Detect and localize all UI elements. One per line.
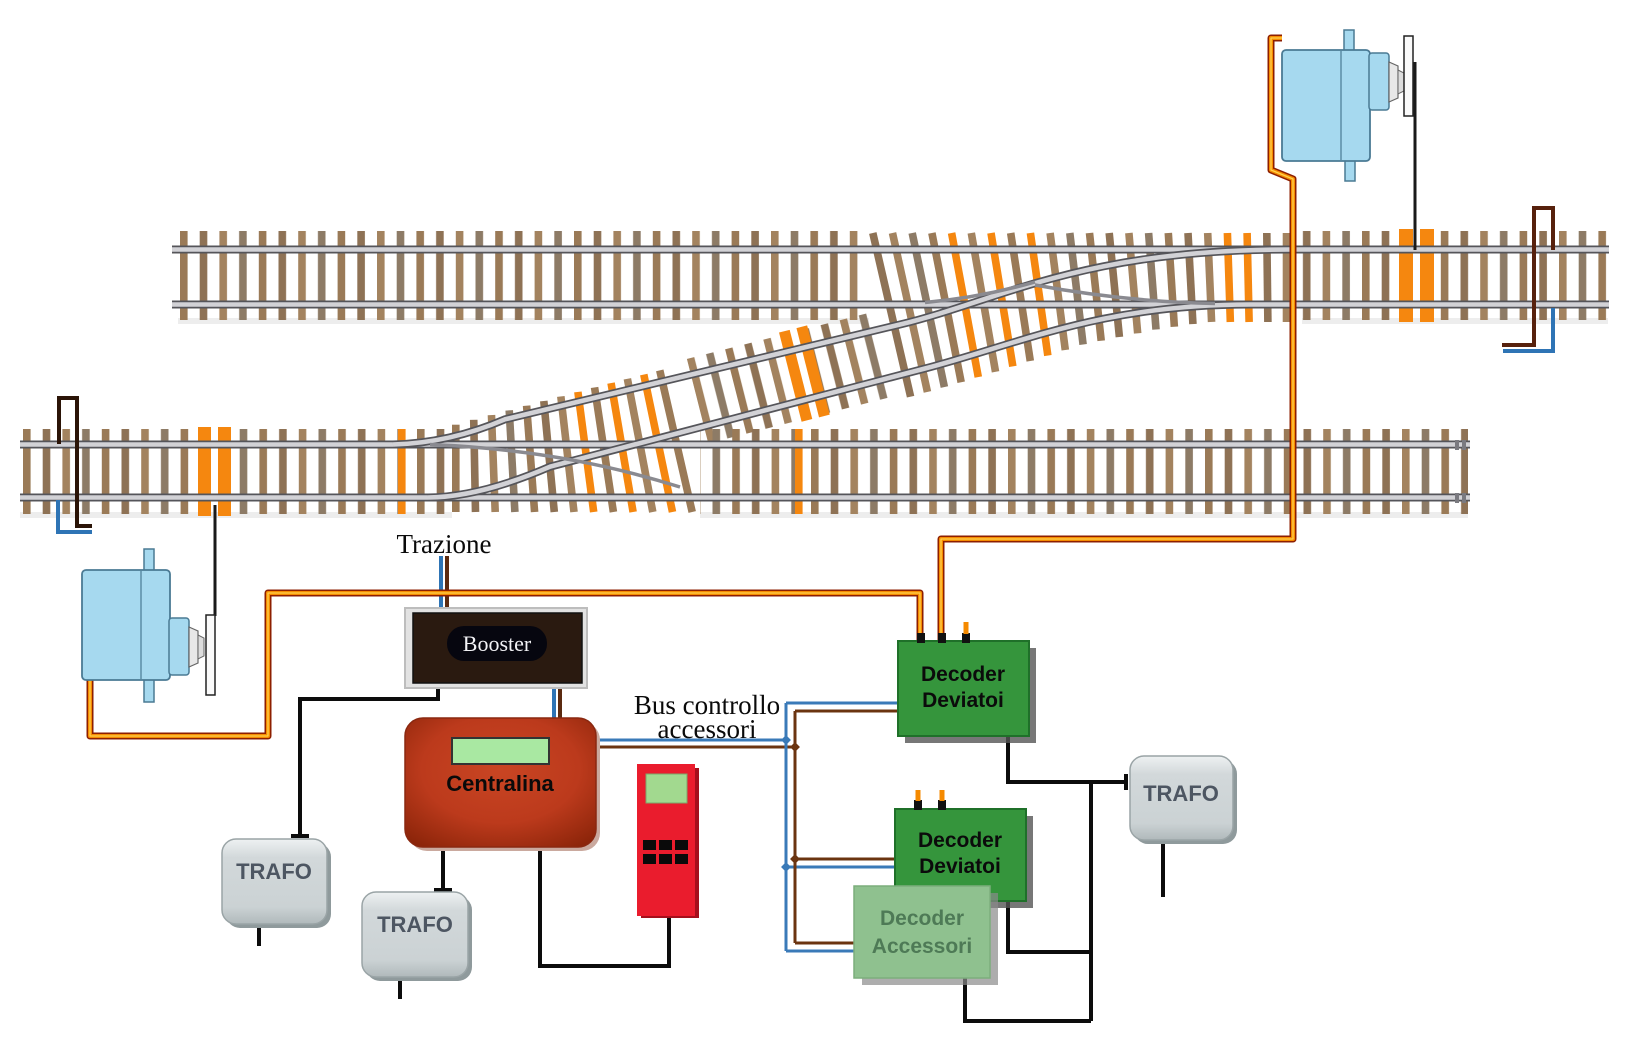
svg-text:accessori: accessori [658, 714, 757, 744]
svg-text:Deviatoi: Deviatoi [919, 855, 1001, 878]
svg-text:Accessori: Accessori [872, 935, 972, 958]
svg-text:Deviatoi: Deviatoi [922, 689, 1004, 712]
svg-text:Centralina: Centralina [446, 771, 554, 796]
svg-text:TRAFO: TRAFO [236, 859, 312, 884]
svg-text:TRAFO: TRAFO [1143, 781, 1219, 806]
svg-text:Booster: Booster [463, 631, 532, 656]
svg-text:Decoder: Decoder [880, 907, 964, 930]
svg-text:Trazione: Trazione [397, 529, 492, 559]
svg-text:Decoder: Decoder [918, 829, 1002, 852]
svg-text:TRAFO: TRAFO [377, 912, 453, 937]
svg-text:Decoder: Decoder [921, 663, 1005, 686]
